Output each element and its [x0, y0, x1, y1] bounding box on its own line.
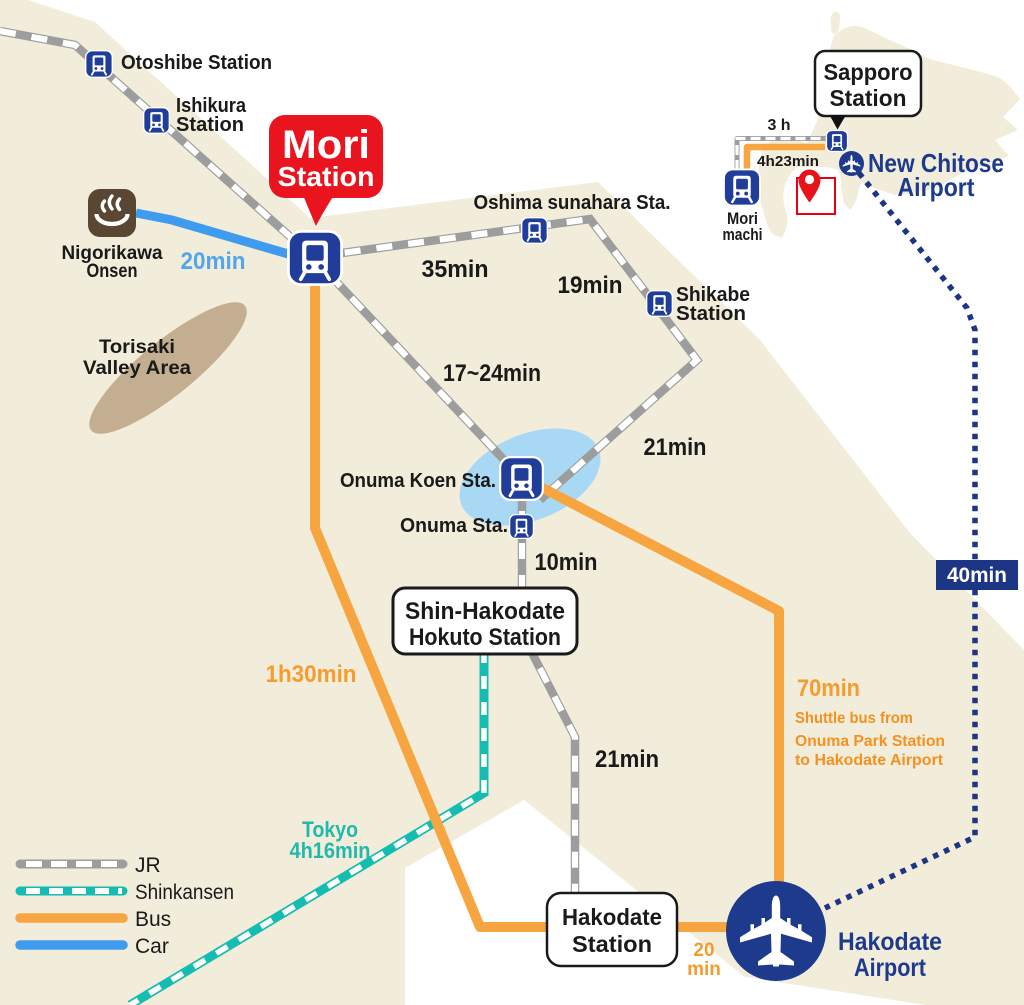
svg-text:machi: machi [723, 225, 763, 244]
svg-text:4h16min: 4h16min [290, 838, 371, 863]
svg-text:Hakodate: Hakodate [838, 928, 942, 956]
svg-text:19min: 19min [558, 272, 623, 299]
svg-text:Sapporo: Sapporo [824, 59, 913, 85]
svg-text:Onuma Koen Sta.: Onuma Koen Sta. [340, 470, 496, 492]
svg-text:Bus: Bus [135, 908, 171, 931]
svg-text:Shinkansen: Shinkansen [135, 881, 234, 904]
svg-text:Onuma Sta.: Onuma Sta. [400, 515, 508, 537]
svg-text:Shin-Hakodate: Shin-Hakodate [405, 598, 565, 625]
svg-text:to Hakodate Airport: to Hakodate Airport [795, 752, 944, 769]
svg-text:20min: 20min [181, 248, 246, 275]
svg-text:Station: Station [572, 931, 652, 957]
svg-text:Station: Station [176, 114, 244, 136]
svg-text:Valley Area: Valley Area [83, 358, 191, 379]
svg-text:4h23min: 4h23min [757, 153, 819, 170]
svg-text:21min: 21min [595, 746, 659, 773]
svg-text:JR: JR [135, 854, 161, 877]
svg-text:70min: 70min [797, 675, 860, 702]
svg-text:Hokuto Station: Hokuto Station [409, 624, 561, 651]
svg-text:Onuma Park Station: Onuma Park Station [795, 733, 945, 750]
svg-text:Car: Car [135, 935, 169, 958]
svg-text:Oshima sunahara Sta.: Oshima sunahara Sta. [474, 192, 671, 214]
svg-text:Airport: Airport [854, 954, 927, 982]
svg-text:Hakodate: Hakodate [562, 904, 662, 930]
svg-text:Station: Station [278, 161, 375, 192]
svg-text:3 h: 3 h [767, 117, 790, 134]
svg-text:10min: 10min [535, 549, 598, 576]
svg-text:17~24min: 17~24min [443, 360, 541, 387]
svg-text:Otoshibe Station: Otoshibe Station [121, 52, 272, 74]
svg-text:min: min [687, 959, 721, 980]
svg-text:Station: Station [830, 85, 907, 111]
svg-text:20: 20 [693, 940, 714, 961]
svg-text:35min: 35min [422, 256, 489, 283]
svg-text:Station: Station [676, 303, 746, 325]
svg-text:1h30min: 1h30min [266, 661, 357, 688]
svg-text:Onsen: Onsen [87, 261, 138, 282]
svg-text:Shuttle bus from: Shuttle bus from [795, 710, 913, 727]
svg-text:21min: 21min [644, 434, 707, 461]
svg-text:Torisaki: Torisaki [99, 337, 175, 358]
svg-text:40min: 40min [947, 564, 1007, 587]
svg-text:Airport: Airport [898, 172, 975, 202]
